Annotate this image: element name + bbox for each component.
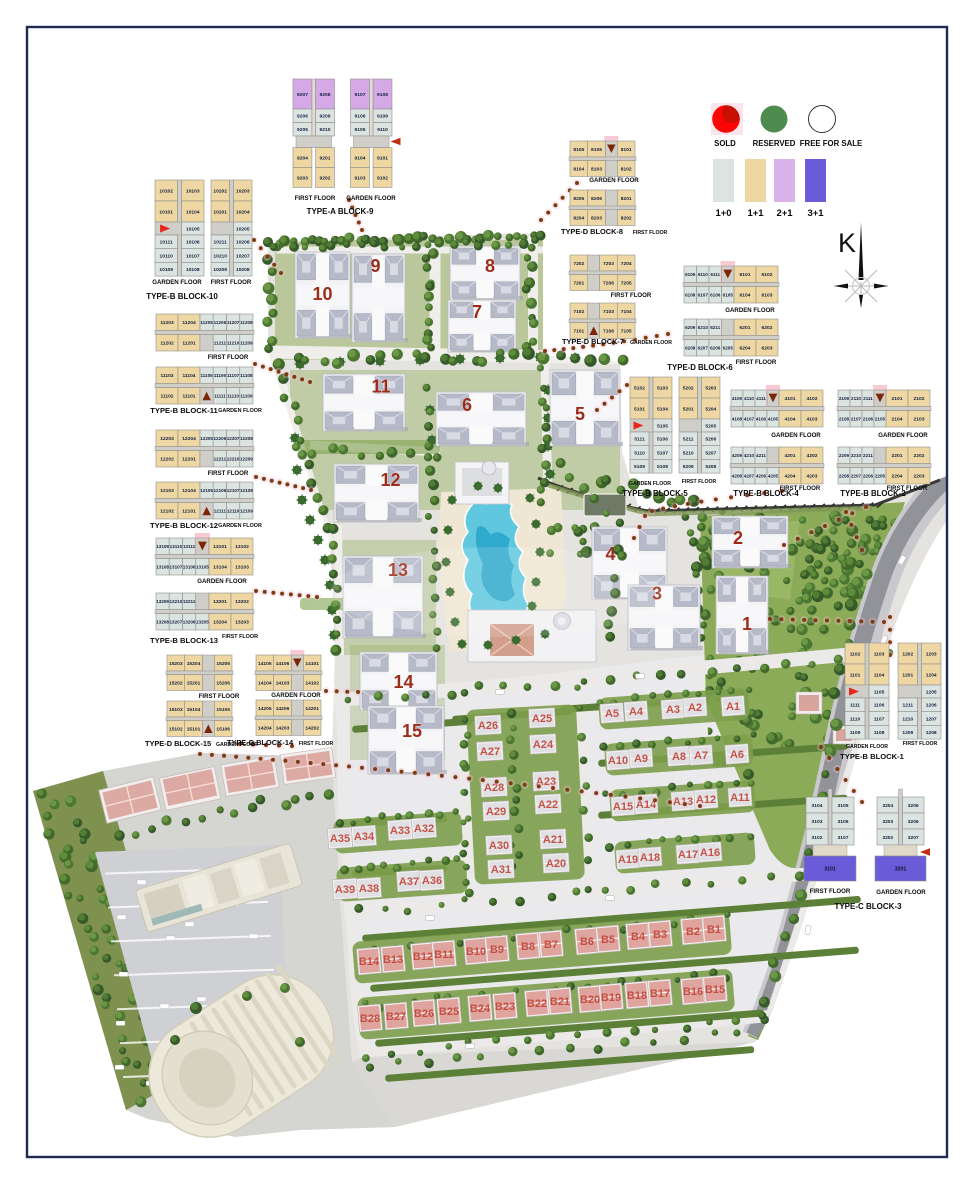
- svg-text:11110: 11110: [227, 394, 239, 399]
- svg-text:15104: 15104: [187, 707, 201, 713]
- svg-text:TYPE-A BLOCK-9: TYPE-A BLOCK-9: [307, 207, 374, 216]
- svg-text:14105: 14105: [258, 661, 272, 667]
- svg-text:3207: 3207: [908, 835, 919, 841]
- svg-text:10207: 10207: [236, 253, 250, 259]
- svg-text:FIRST FLOOR: FIRST FLOOR: [736, 359, 777, 366]
- svg-text:11106: 11106: [214, 373, 227, 378]
- svg-text:14203: 14203: [276, 725, 290, 731]
- svg-text:B19: B19: [601, 992, 621, 1004]
- svg-text:14104: 14104: [258, 680, 272, 686]
- svg-text:A34: A34: [354, 831, 375, 843]
- svg-text:14103: 14103: [276, 680, 290, 686]
- svg-text:11208: 11208: [240, 320, 253, 325]
- svg-text:3101: 3101: [824, 866, 836, 872]
- svg-text:3203: 3203: [882, 819, 893, 825]
- svg-text:10110: 10110: [160, 253, 174, 259]
- svg-text:4111: 4111: [756, 396, 766, 401]
- svg-text:15103: 15103: [169, 707, 183, 713]
- svg-text:1204: 1204: [926, 672, 937, 678]
- svg-text:A32: A32: [414, 823, 434, 835]
- svg-text:4107: 4107: [744, 417, 755, 422]
- svg-text:8204: 8204: [573, 215, 584, 221]
- svg-text:A8: A8: [672, 751, 686, 763]
- svg-text:5: 5: [575, 404, 585, 424]
- svg-text:13110: 13110: [170, 544, 183, 549]
- svg-text:FREE FOR SALE: FREE FOR SALE: [800, 139, 862, 148]
- svg-text:10102: 10102: [159, 188, 173, 194]
- svg-text:11105: 11105: [200, 373, 213, 378]
- svg-text:12210: 12210: [227, 457, 240, 462]
- svg-text:2202: 2202: [914, 453, 925, 459]
- svg-text:8105: 8105: [573, 147, 584, 153]
- svg-text:B8: B8: [521, 941, 535, 953]
- svg-text:11101: 11101: [182, 394, 195, 400]
- svg-text:6101: 6101: [740, 272, 751, 278]
- svg-text:6108: 6108: [685, 293, 696, 298]
- svg-text:11211: 11211: [214, 341, 227, 346]
- svg-text:13208: 13208: [156, 620, 169, 625]
- svg-text:12205: 12205: [200, 436, 213, 441]
- svg-text:B4: B4: [631, 931, 646, 943]
- svg-text:A30: A30: [489, 840, 509, 852]
- svg-text:FIRST FLOOR: FIRST FLOOR: [208, 470, 249, 477]
- svg-text:TYPE-B BLOCK-12: TYPE-B BLOCK-12: [150, 521, 218, 530]
- svg-text:TYPE-B BLOCK-13: TYPE-B BLOCK-13: [150, 636, 218, 645]
- svg-text:7102: 7102: [573, 309, 584, 315]
- svg-text:5202: 5202: [683, 385, 694, 391]
- svg-text:A4: A4: [629, 706, 644, 718]
- svg-text:2105: 2105: [875, 417, 886, 422]
- svg-text:A35: A35: [330, 833, 350, 845]
- svg-text:1109: 1109: [850, 730, 861, 736]
- svg-text:13203: 13203: [235, 620, 249, 626]
- svg-text:1+1: 1+1: [747, 208, 764, 219]
- svg-text:GARDEN FLOOR: GARDEN FLOOR: [630, 340, 672, 346]
- svg-text:11103: 11103: [160, 373, 173, 379]
- svg-text:4106: 4106: [756, 417, 767, 422]
- svg-text:9203: 9203: [297, 175, 308, 181]
- svg-text:14102: 14102: [305, 680, 319, 686]
- svg-text:10205: 10205: [236, 226, 250, 232]
- svg-text:B18: B18: [627, 990, 647, 1002]
- svg-text:7201: 7201: [573, 280, 584, 286]
- svg-text:2107: 2107: [851, 417, 862, 422]
- svg-text:6107: 6107: [698, 293, 709, 298]
- svg-text:1202: 1202: [902, 651, 913, 657]
- svg-text:TYPE-D BLOCK-7: TYPE-D BLOCK-7: [562, 337, 624, 346]
- svg-text:FIRST FLOOR: FIRST FLOOR: [903, 741, 938, 747]
- svg-text:13106: 13106: [183, 565, 196, 570]
- svg-text:2208: 2208: [839, 474, 850, 479]
- svg-text:B12: B12: [413, 951, 433, 963]
- svg-text:GARDEN FLOOR: GARDEN FLOOR: [271, 692, 321, 699]
- svg-text:2111: 2111: [863, 396, 873, 401]
- svg-text:15204: 15204: [187, 661, 201, 667]
- svg-text:2209: 2209: [839, 453, 850, 458]
- svg-text:A22: A22: [538, 799, 558, 811]
- svg-text:5205: 5205: [705, 423, 716, 429]
- svg-text:2103: 2103: [914, 417, 925, 423]
- svg-text:15101: 15101: [187, 726, 201, 732]
- svg-text:5206: 5206: [705, 437, 716, 443]
- svg-text:4207: 4207: [744, 474, 755, 479]
- svg-text:B15: B15: [705, 984, 725, 996]
- svg-text:3201: 3201: [895, 866, 907, 872]
- svg-text:11206: 11206: [214, 320, 227, 325]
- svg-text:9210: 9210: [320, 127, 331, 133]
- svg-text:10103: 10103: [186, 188, 200, 194]
- svg-text:11107: 11107: [227, 373, 240, 378]
- svg-text:12203: 12203: [160, 436, 174, 442]
- svg-text:4208: 4208: [732, 474, 743, 479]
- svg-text:11102: 11102: [160, 394, 173, 400]
- svg-text:5204: 5204: [705, 406, 716, 412]
- svg-text:7104: 7104: [621, 309, 632, 315]
- svg-text:10108: 10108: [186, 267, 200, 273]
- svg-text:GARDEN FLOOR: GARDEN FLOOR: [589, 177, 639, 184]
- svg-text:11201: 11201: [182, 341, 196, 347]
- svg-text:3103: 3103: [812, 819, 823, 825]
- svg-text:8205: 8205: [573, 196, 584, 202]
- svg-text:1206: 1206: [926, 703, 937, 709]
- svg-text:TYPE-B BLOCK-10: TYPE-B BLOCK-10: [146, 292, 218, 301]
- svg-text:1103: 1103: [874, 651, 885, 657]
- svg-text:13111: 13111: [183, 544, 196, 549]
- svg-text:7206: 7206: [603, 280, 614, 286]
- svg-text:GARDEN FLOOR: GARDEN FLOOR: [846, 744, 888, 750]
- svg-text:2+1: 2+1: [776, 208, 793, 219]
- svg-text:10208: 10208: [236, 267, 250, 273]
- svg-text:9103: 9103: [355, 175, 366, 181]
- svg-text:1107: 1107: [874, 716, 885, 722]
- svg-text:FIRST FLOOR: FIRST FLOOR: [295, 195, 336, 202]
- svg-text:12204: 12204: [182, 436, 196, 442]
- svg-text:A11: A11: [730, 792, 750, 804]
- svg-text:TYPE-B BLOCK-1: TYPE-B BLOCK-1: [840, 752, 904, 761]
- svg-text:10204: 10204: [236, 209, 250, 215]
- svg-text:12102: 12102: [160, 509, 174, 515]
- svg-text:9108: 9108: [377, 92, 388, 98]
- svg-text:5105: 5105: [657, 423, 668, 429]
- svg-text:GARDEN FLOOR: GARDEN FLOOR: [876, 889, 926, 896]
- svg-text:12105: 12105: [200, 488, 213, 493]
- svg-text:5211: 5211: [683, 437, 694, 443]
- svg-text:6105: 6105: [723, 293, 734, 298]
- svg-text:A2: A2: [688, 702, 702, 714]
- svg-text:A21: A21: [543, 834, 563, 846]
- svg-text:4108: 4108: [732, 417, 743, 422]
- svg-text:13210: 13210: [170, 599, 183, 604]
- svg-text:3104: 3104: [812, 803, 823, 809]
- svg-text:3+1: 3+1: [807, 208, 824, 219]
- svg-text:11205: 11205: [200, 320, 213, 325]
- svg-text:6204: 6204: [740, 346, 751, 352]
- svg-text:FIRST FLOOR: FIRST FLOOR: [211, 279, 252, 286]
- svg-text:15203: 15203: [169, 661, 183, 667]
- svg-text:1+0: 1+0: [715, 208, 731, 219]
- svg-text:3202: 3202: [882, 835, 893, 841]
- svg-text:9204: 9204: [297, 155, 308, 161]
- svg-text:12111: 12111: [214, 509, 227, 514]
- svg-text:10106: 10106: [186, 240, 200, 246]
- svg-text:2104: 2104: [892, 417, 903, 423]
- svg-text:1105: 1105: [874, 689, 885, 695]
- svg-text:5111: 5111: [634, 437, 645, 443]
- svg-text:10107: 10107: [186, 253, 200, 259]
- svg-text:10206: 10206: [236, 240, 250, 246]
- svg-text:12: 12: [380, 470, 400, 490]
- svg-text:13101: 13101: [213, 544, 227, 550]
- svg-text:10211: 10211: [214, 240, 228, 246]
- svg-text:6109: 6109: [685, 272, 696, 277]
- svg-text:13202: 13202: [235, 599, 249, 605]
- svg-text:A36: A36: [422, 875, 442, 887]
- svg-text:A9: A9: [634, 753, 648, 765]
- svg-text:TYPE-B BLOCK-11: TYPE-B BLOCK-11: [150, 406, 218, 415]
- svg-text:4110: 4110: [744, 396, 754, 401]
- svg-text:10203: 10203: [236, 188, 250, 194]
- svg-text:A15: A15: [613, 801, 633, 813]
- svg-text:6208: 6208: [685, 346, 696, 351]
- svg-text:A38: A38: [359, 883, 379, 895]
- svg-text:10111: 10111: [160, 240, 173, 246]
- svg-text:12108: 12108: [240, 488, 253, 493]
- svg-text:6211: 6211: [710, 325, 720, 330]
- svg-text:1208: 1208: [926, 730, 937, 736]
- svg-text:4210: 4210: [744, 453, 755, 458]
- svg-text:8104: 8104: [573, 166, 584, 172]
- svg-text:RESERVED: RESERVED: [753, 139, 796, 148]
- svg-text:5107: 5107: [657, 450, 668, 456]
- svg-text:2110: 2110: [851, 396, 861, 401]
- svg-text:6210: 6210: [698, 325, 709, 330]
- svg-text:9107: 9107: [355, 92, 366, 98]
- svg-text:3105: 3105: [838, 803, 849, 809]
- svg-text:B26: B26: [414, 1008, 434, 1020]
- svg-text:4201: 4201: [785, 453, 796, 459]
- svg-text:5101: 5101: [634, 406, 645, 412]
- svg-text:GARDEN FLOOR: GARDEN FLOOR: [878, 432, 928, 439]
- svg-text:13104: 13104: [213, 565, 227, 571]
- svg-text:11108: 11108: [240, 373, 253, 378]
- svg-text:FIRST FLOOR: FIRST FLOOR: [299, 741, 334, 747]
- svg-text:8203: 8203: [591, 215, 602, 221]
- svg-text:9109: 9109: [377, 114, 388, 120]
- svg-text:A33: A33: [390, 825, 410, 837]
- svg-text:4109: 4109: [732, 396, 743, 401]
- svg-text:GARDEN FLOOR: GARDEN FLOOR: [725, 307, 775, 314]
- svg-text:2108: 2108: [839, 417, 850, 422]
- svg-text:B21: B21: [550, 996, 570, 1008]
- svg-text:SOLD: SOLD: [714, 139, 736, 148]
- svg-text:12202: 12202: [160, 457, 174, 463]
- svg-text:B6: B6: [580, 936, 594, 948]
- svg-text:15102: 15102: [169, 726, 183, 732]
- svg-text:14: 14: [393, 672, 413, 692]
- svg-text:9209: 9209: [320, 114, 331, 120]
- svg-text:12208: 12208: [240, 436, 253, 441]
- svg-text:B27: B27: [386, 1011, 406, 1023]
- svg-text:B22: B22: [527, 998, 547, 1010]
- svg-text:FIRST FLOOR: FIRST FLOOR: [810, 888, 851, 895]
- svg-text:12209: 12209: [240, 457, 253, 462]
- svg-text:4104: 4104: [785, 417, 796, 423]
- svg-text:B9: B9: [490, 944, 504, 956]
- svg-text:GARDEN FLOOR: GARDEN FLOOR: [152, 279, 202, 286]
- svg-text:9105: 9105: [355, 127, 366, 133]
- svg-text:B16: B16: [683, 986, 703, 998]
- svg-text:5109: 5109: [634, 464, 645, 470]
- svg-text:B3: B3: [653, 929, 667, 941]
- svg-text:1108: 1108: [874, 730, 885, 736]
- svg-text:TYPE-D BLOCK-15: TYPE-D BLOCK-15: [145, 739, 211, 748]
- svg-text:A39: A39: [335, 884, 355, 896]
- svg-text:A20: A20: [546, 858, 566, 870]
- svg-text:9208: 9208: [320, 92, 331, 98]
- svg-text:A27: A27: [480, 746, 500, 758]
- svg-text:8103: 8103: [591, 166, 602, 172]
- svg-text:14101: 14101: [305, 661, 319, 667]
- svg-text:8201: 8201: [621, 196, 632, 202]
- svg-text:1211: 1211: [902, 703, 913, 709]
- svg-text:13211: 13211: [183, 599, 196, 604]
- svg-text:6203: 6203: [762, 346, 773, 352]
- svg-text:4102: 4102: [807, 396, 818, 402]
- svg-text:1: 1: [742, 614, 752, 634]
- svg-text:13201: 13201: [213, 599, 227, 605]
- svg-text:12211: 12211: [214, 457, 227, 462]
- svg-text:7204: 7204: [621, 261, 632, 267]
- svg-text:5106: 5106: [657, 437, 668, 443]
- svg-text:2: 2: [733, 528, 743, 548]
- svg-text:4209: 4209: [732, 453, 743, 458]
- svg-text:5110: 5110: [634, 450, 645, 456]
- svg-text:6106: 6106: [710, 293, 721, 298]
- svg-text:15: 15: [402, 721, 422, 741]
- svg-text:10105: 10105: [186, 226, 200, 232]
- svg-text:2211: 2211: [863, 453, 873, 458]
- svg-text:1209: 1209: [902, 730, 913, 736]
- svg-text:B7: B7: [544, 939, 558, 951]
- svg-text:13107: 13107: [170, 565, 183, 570]
- svg-text:A25: A25: [532, 713, 552, 725]
- svg-text:7203: 7203: [603, 261, 614, 267]
- svg-text:B14: B14: [359, 956, 380, 968]
- svg-text:B13: B13: [383, 954, 403, 966]
- svg-text:7103: 7103: [603, 309, 614, 315]
- svg-text:6104: 6104: [740, 293, 751, 299]
- svg-text:A10: A10: [608, 755, 628, 767]
- svg-text:1110: 1110: [850, 716, 861, 722]
- svg-text:7105: 7105: [621, 328, 632, 334]
- svg-text:14205: 14205: [258, 706, 272, 712]
- svg-text:10: 10: [312, 284, 332, 304]
- svg-text:7202: 7202: [573, 261, 584, 267]
- svg-text:15202: 15202: [169, 680, 183, 686]
- svg-text:12103: 12103: [160, 488, 174, 494]
- svg-text:7205: 7205: [621, 280, 632, 286]
- svg-text:A37: A37: [399, 876, 419, 888]
- svg-text:6202: 6202: [762, 325, 773, 331]
- svg-text:GARDEN FLOOR: GARDEN FLOOR: [218, 523, 262, 529]
- svg-text:TYPE-D BLOCK-8: TYPE-D BLOCK-8: [561, 227, 623, 236]
- svg-text:8: 8: [485, 256, 495, 276]
- svg-text:7106: 7106: [603, 328, 614, 334]
- svg-text:9202: 9202: [320, 175, 331, 181]
- svg-text:11202: 11202: [160, 341, 174, 347]
- svg-text:15206: 15206: [216, 680, 230, 686]
- svg-text:FIRST FLOOR: FIRST FLOOR: [611, 292, 652, 299]
- svg-text:TYPE-D BLOCK-6: TYPE-D BLOCK-6: [667, 363, 733, 372]
- svg-text:5108: 5108: [657, 464, 668, 470]
- svg-text:FIRST FLOOR: FIRST FLOOR: [222, 634, 258, 640]
- svg-text:12110: 12110: [227, 509, 240, 514]
- svg-text:12107: 12107: [227, 488, 240, 493]
- svg-text:14201: 14201: [305, 706, 319, 712]
- svg-text:10209: 10209: [213, 267, 227, 273]
- svg-text:1201: 1201: [902, 672, 913, 678]
- svg-text:1203: 1203: [926, 651, 937, 657]
- svg-text:14106: 14106: [276, 661, 290, 667]
- svg-text:B24: B24: [470, 1003, 491, 1015]
- svg-text:3204: 3204: [882, 803, 893, 809]
- svg-text:15106: 15106: [216, 726, 230, 732]
- svg-text:3106: 3106: [838, 819, 849, 825]
- svg-text:B17: B17: [650, 988, 670, 1000]
- svg-text:6102: 6102: [762, 272, 773, 278]
- svg-text:12109: 12109: [240, 509, 253, 514]
- svg-text:10109: 10109: [159, 267, 173, 273]
- svg-text:2206: 2206: [863, 474, 874, 479]
- svg-text:8101: 8101: [621, 147, 632, 153]
- svg-text:11: 11: [371, 377, 390, 397]
- svg-text:A3: A3: [666, 704, 680, 716]
- svg-text:FIRST FLOOR: FIRST FLOOR: [199, 693, 240, 700]
- svg-text:6: 6: [462, 395, 472, 415]
- svg-text:4206: 4206: [756, 474, 767, 479]
- svg-text:4204: 4204: [785, 474, 796, 480]
- svg-text:6209: 6209: [685, 325, 696, 330]
- svg-text:B23: B23: [495, 1001, 515, 1013]
- svg-text:10210: 10210: [213, 253, 227, 259]
- svg-text:GARDEN FLOOR: GARDEN FLOOR: [218, 408, 262, 414]
- svg-text:A16: A16: [700, 847, 720, 859]
- svg-text:1102: 1102: [850, 651, 861, 657]
- svg-text:A24: A24: [533, 739, 554, 751]
- svg-text:3205: 3205: [908, 803, 919, 809]
- svg-text:6206: 6206: [710, 346, 721, 351]
- svg-text:GARDEN FLOOR: GARDEN FLOOR: [197, 578, 247, 585]
- svg-text:6110: 6110: [698, 272, 708, 277]
- svg-text:8202: 8202: [621, 215, 632, 221]
- svg-text:A19: A19: [618, 854, 638, 866]
- svg-text:1205: 1205: [926, 689, 937, 695]
- svg-text:TYPE-B BLOCK-5: TYPE-B BLOCK-5: [622, 489, 688, 498]
- svg-text:1101: 1101: [850, 672, 861, 678]
- svg-text:B11: B11: [434, 949, 454, 961]
- svg-text:12104: 12104: [182, 488, 196, 494]
- svg-text:3107: 3107: [838, 835, 849, 841]
- svg-text:2101: 2101: [892, 396, 903, 402]
- svg-text:8102: 8102: [621, 166, 632, 172]
- svg-text:11207: 11207: [227, 320, 240, 325]
- svg-text:4203: 4203: [807, 474, 818, 480]
- svg-text:13204: 13204: [213, 620, 227, 626]
- svg-text:15205: 15205: [216, 661, 230, 667]
- svg-text:14206: 14206: [276, 706, 290, 712]
- svg-text:1106: 1106: [874, 703, 885, 709]
- svg-text:5209: 5209: [683, 464, 694, 470]
